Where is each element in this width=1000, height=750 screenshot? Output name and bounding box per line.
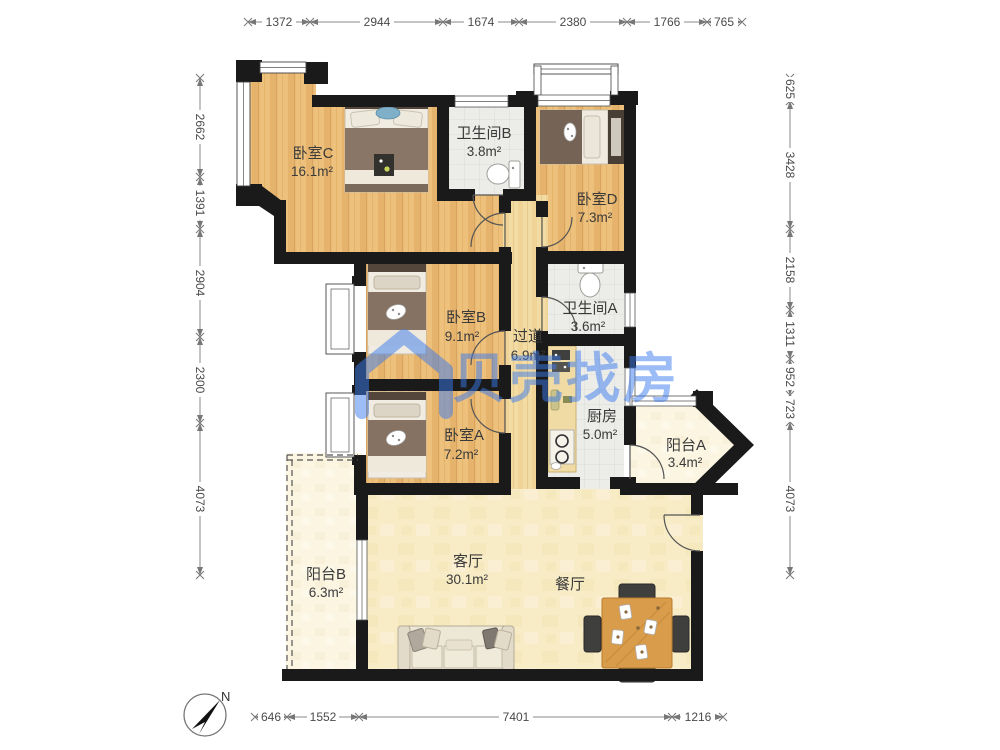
dim-left-3: 2904 (193, 270, 207, 297)
dim-right-3: 2158 (783, 257, 797, 284)
dim-left-4: 2300 (193, 367, 207, 394)
room-area-bedroom-a: 7.2m² (444, 447, 479, 462)
room-label-bedroom-a: 卧室A (444, 427, 484, 444)
room-label-bathroom-a: 卫生间A (562, 300, 617, 317)
dimension-chain-top: 1372 2944 1674 2380 1766 765 (244, 15, 746, 29)
dim-right-6: 723 (783, 399, 797, 419)
dim-left-1: 2662 (193, 114, 207, 141)
dim-left-5: 4073 (193, 486, 207, 513)
dim-right-7: 4073 (783, 486, 797, 513)
room-label-bedroom-c: 卧室C (293, 145, 334, 162)
dim-right-1: 625 (783, 79, 797, 99)
balcony-b-slider-window (357, 540, 367, 620)
dim-top-3: 1674 (468, 15, 495, 29)
watermark-text: 贝壳找房 (452, 349, 680, 409)
dim-right-2: 3428 (783, 152, 797, 179)
room-label-bedroom-d: 卧室D (577, 191, 618, 208)
dim-bottom-4: 1216 (685, 710, 712, 724)
room-label-kitchen: 厨房 (587, 408, 617, 425)
bedroom-b-bay-window (326, 284, 354, 354)
room-area-balcony-b: 6.3m² (309, 585, 344, 600)
dim-top-2: 2944 (364, 15, 391, 29)
dim-top-5: 1766 (654, 15, 681, 29)
dim-top-6: 765 (714, 15, 734, 29)
room-label-living-room: 客厅 (453, 553, 483, 570)
room-label-dining-room: 餐厅 (555, 576, 585, 593)
balcony-b-floor (286, 453, 362, 675)
floor-plan-page: 卧室C 16.1m² 卫生间B 3.8m² 卧室D 7.3m² 卧室B 9.1m… (0, 0, 1000, 750)
floor-plan: 卧室C 16.1m² 卫生间B 3.8m² 卧室D 7.3m² 卧室B 9.1m… (0, 0, 1000, 750)
single-bed-a-icon (368, 392, 426, 478)
room-label-bedroom-b: 卧室B (446, 309, 486, 326)
room-area-bedroom-b: 9.1m² (445, 329, 480, 344)
compass-north-label: N (221, 689, 230, 704)
room-area-bathroom-a: 3.6m² (571, 319, 606, 334)
dimension-chain-bottom: 646 1552 7401 1216 (251, 710, 727, 724)
room-area-kitchen: 5.0m² (583, 427, 618, 442)
bedroom-a-bay-window (326, 393, 354, 457)
room-area-bedroom-c: 16.1m² (291, 164, 334, 179)
dim-right-4: 1311 (783, 321, 797, 347)
dim-bottom-1: 646 (261, 710, 281, 724)
sofa-icon (398, 626, 514, 672)
single-bed-d-icon (540, 110, 624, 164)
bathroom-a-window (625, 293, 635, 327)
bedroom-d-bay-window (534, 64, 618, 106)
room-area-balcony-a: 3.4m² (668, 455, 703, 470)
dim-left-2: 1391 (193, 190, 207, 217)
room-area-living-room: 30.1m² (446, 572, 489, 587)
room-area-bathroom-b: 3.8m² (467, 144, 502, 159)
bathroom-b-window (455, 96, 508, 107)
room-label-bathroom-b: 卫生间B (456, 125, 511, 142)
room-label-balcony-b: 阳台B (306, 566, 346, 583)
dim-bottom-2: 1552 (310, 710, 337, 724)
compass-icon: N (184, 689, 230, 736)
dim-top-4: 2380 (560, 15, 587, 29)
room-area-bedroom-d: 7.3m² (578, 210, 613, 225)
room-label-hallway: 过道 (513, 328, 543, 345)
double-bed-icon (345, 100, 428, 192)
dim-top-1: 1372 (266, 15, 293, 29)
dim-bottom-3: 7401 (503, 710, 530, 724)
dimension-chain-right: 625 3428 2158 1311 952 723 4073 (783, 74, 797, 579)
dim-right-5: 952 (783, 367, 797, 387)
room-label-balcony-a: 阳台A (666, 437, 706, 454)
dimension-chain-left: 2662 1391 2904 2300 4073 (193, 74, 207, 579)
